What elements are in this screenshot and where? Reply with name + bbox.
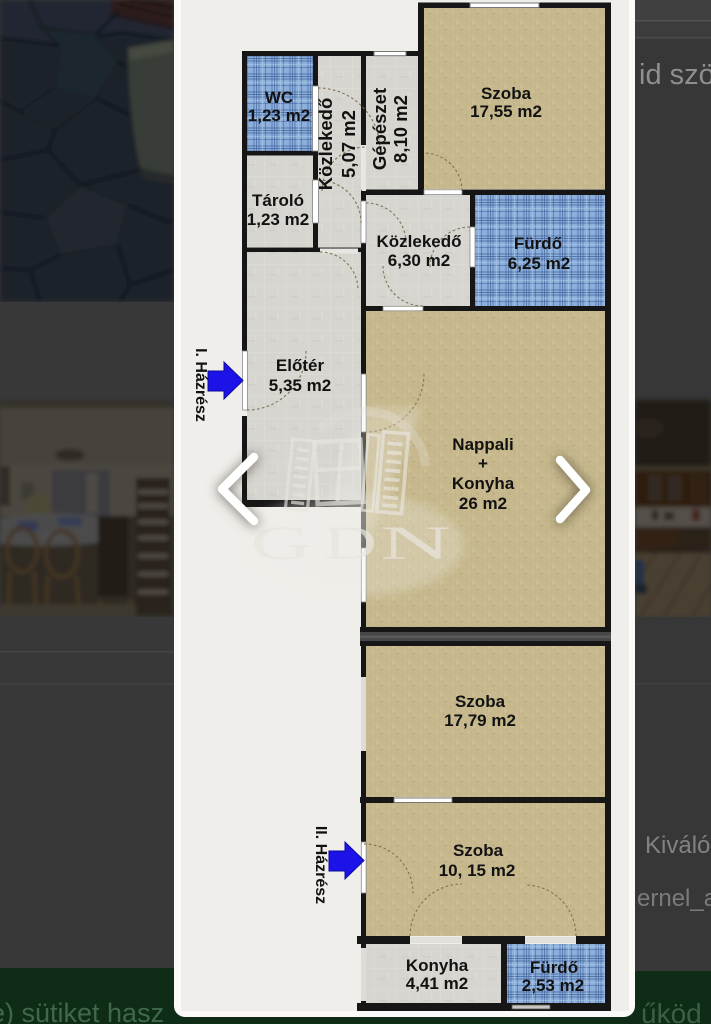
- svg-text:Közlekedő: Közlekedő: [376, 232, 461, 251]
- svg-text:10, 15 m2: 10, 15 m2: [439, 861, 516, 880]
- svg-text:Szoba: Szoba: [481, 84, 532, 103]
- svg-text:6,30 m2: 6,30 m2: [388, 251, 450, 270]
- svg-text:Nappali: Nappali: [452, 435, 513, 454]
- svg-text:1,23 m2: 1,23 m2: [247, 210, 309, 229]
- svg-text:Előtér: Előtér: [276, 356, 325, 375]
- svg-text:WC: WC: [265, 88, 293, 107]
- svg-text:G: G: [251, 516, 312, 569]
- svg-text:Gépészet: Gépészet: [369, 88, 390, 170]
- svg-text:+: +: [478, 454, 488, 473]
- svg-text:Szoba: Szoba: [455, 692, 506, 711]
- svg-text:17,55 m2: 17,55 m2: [470, 102, 542, 121]
- svg-text:Szoba: Szoba: [453, 841, 504, 860]
- svg-text:17,79 m2: 17,79 m2: [444, 711, 516, 730]
- svg-text:Fürdő: Fürdő: [530, 958, 578, 977]
- svg-text:Tároló: Tároló: [252, 191, 304, 210]
- svg-text:II. Házrész: II. Házrész: [312, 826, 329, 904]
- svg-text:1,23 m2: 1,23 m2: [248, 106, 310, 125]
- svg-text:26 m2: 26 m2: [459, 494, 507, 513]
- svg-text:Közlekedő: Közlekedő: [315, 98, 336, 191]
- svg-text:8,10 m2: 8,10 m2: [390, 95, 411, 163]
- svg-text:2,53 m2: 2,53 m2: [522, 976, 584, 995]
- svg-text:5,35 m2: 5,35 m2: [269, 376, 331, 395]
- svg-text:D: D: [323, 516, 377, 570]
- svg-text:6,25 m2: 6,25 m2: [508, 254, 570, 273]
- svg-text:5,07 m2: 5,07 m2: [338, 110, 359, 178]
- svg-text:Konyha: Konyha: [452, 474, 515, 493]
- svg-text:Fürdő: Fürdő: [514, 234, 562, 253]
- svg-text:I. Házrész: I. Házrész: [192, 348, 209, 422]
- svg-text:Konyha: Konyha: [406, 956, 469, 975]
- svg-text:4,41 m2: 4,41 m2: [406, 974, 468, 993]
- svg-text:N: N: [380, 516, 451, 569]
